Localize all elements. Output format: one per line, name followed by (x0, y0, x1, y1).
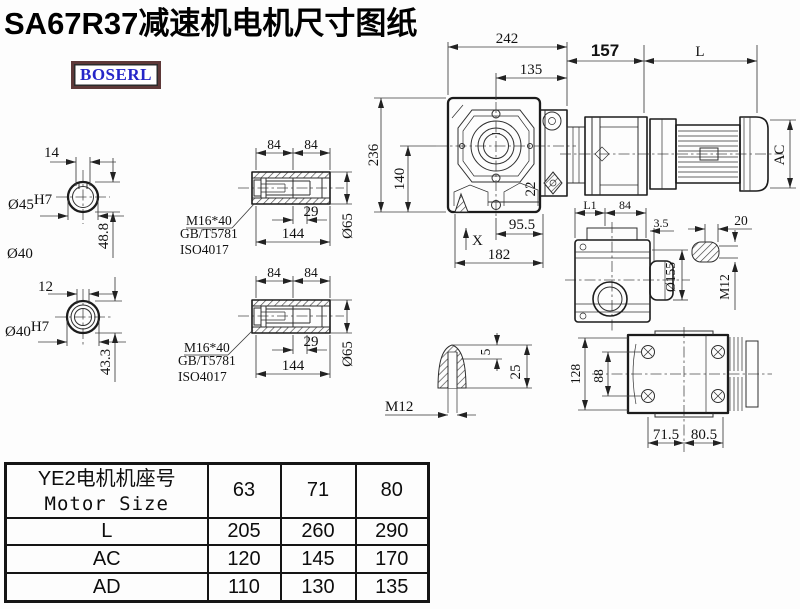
dim-dia-a: Ø65 (340, 213, 356, 239)
table-size-71: 71 (281, 464, 356, 518)
table-header-en: Motor Size (7, 492, 207, 516)
dim-motor-length-L: L (695, 44, 704, 60)
cell-AC-71: 145 (281, 545, 356, 573)
dim-foot-182: 182 (488, 247, 511, 263)
label-std2-b: ISO4017 (178, 369, 227, 384)
dim-plug-5: 5 (478, 348, 493, 355)
dim-side-3-5: 3.5 (654, 216, 669, 230)
dim-motor-dia-AC: AC (772, 145, 788, 166)
dim-len1-b: 84 (267, 265, 281, 280)
dim-keylen-b: 29 (304, 334, 319, 350)
dim-flange-dia-155: Ø155 (663, 262, 678, 292)
table-header-label: YE2电机机座号 Motor Size (6, 464, 208, 518)
cell-AD-80: 135 (356, 573, 429, 601)
dim-top-71-5: 71.5 (653, 427, 679, 443)
dim-adapter-157: 157 (591, 41, 619, 60)
cell-L-63: 205 (208, 518, 281, 545)
table-row: AD 110 130 135 (6, 573, 429, 601)
drawing-sheet: SA67R37减速机电机尺寸图纸 BOSERL 14 (0, 0, 800, 609)
view-shaft-bore-b: 12 Ø40H7 43.3 (5, 277, 126, 382)
table-size-80: 80 (356, 464, 429, 518)
label-std1-b: GB/T5781 (178, 353, 236, 368)
dim-bolt-22: 22 (523, 182, 539, 197)
dim-tocenter-135: 135 (520, 62, 543, 78)
label-x-mark: X (472, 233, 483, 249)
dim-top-80-5: 80.5 (691, 427, 717, 443)
table-size-63: 63 (208, 464, 281, 518)
dim-depth-a: 48.8 (96, 223, 112, 249)
label-std2-a: ISO4017 (180, 242, 229, 257)
dim-key-width-a: 14 (44, 145, 60, 161)
label-std1-a: GB/T5781 (180, 226, 238, 241)
dim-len2-a: 84 (304, 137, 318, 152)
cell-L-71: 260 (281, 518, 356, 545)
row-label-L: L (6, 518, 208, 545)
dim-top-128: 128 (568, 364, 583, 385)
cell-L-80: 290 (356, 518, 429, 545)
dim-height-236: 236 (366, 143, 382, 166)
label-tap-m12-plug: M12 (385, 399, 413, 415)
dim-total-a: 144 (282, 226, 305, 242)
table-row: AC 120 145 170 (6, 545, 429, 573)
table-row: L 205 260 290 (6, 518, 429, 545)
dim-top-88: 88 (591, 369, 606, 383)
dim-bore-a: Ø45H7 (8, 192, 53, 213)
dim-dia-b: Ø65 (340, 341, 356, 367)
dim-depth-b: 43.3 (98, 349, 114, 375)
view-shaft-bore-a: 14 Ø45H7 48.8 Ø40 (7, 145, 124, 262)
row-label-AC: AC (6, 545, 208, 573)
view-top: 128 88 71.5 80.5 (568, 327, 772, 452)
label-tap-m12-side: M12 (717, 274, 732, 300)
dim-key-20: 20 (734, 213, 748, 228)
dim-len2-b: 84 (304, 265, 318, 280)
motor-size-table: YE2电机机座号 Motor Size 63 71 80 L 205 260 2… (4, 462, 430, 603)
cell-AC-63: 120 (208, 545, 281, 573)
dim-total-b: 144 (282, 358, 305, 374)
label-outer-dia: Ø40 (7, 246, 33, 262)
row-label-AD: AD (6, 573, 208, 601)
view-side: L1 84 3.5 Ø155 20 M12 (565, 198, 752, 332)
dim-l1: L1 (583, 198, 596, 212)
cell-AD-63: 110 (208, 573, 281, 601)
dim-foot-95-5: 95.5 (509, 217, 535, 233)
table-header-row: YE2电机机座号 Motor Size 63 71 80 (6, 464, 429, 518)
dim-len1-a: 84 (267, 137, 281, 152)
dim-keylen-a: 29 (304, 204, 319, 220)
view-front-assembly: 22 (366, 31, 796, 268)
dim-centerh-140: 140 (392, 168, 408, 191)
dim-width-242: 242 (496, 31, 519, 47)
cell-AD-71: 130 (281, 573, 356, 601)
cell-AC-80: 170 (356, 545, 429, 573)
view-hollow-shaft-b: 84 84 29 144 Ø65 M16*40 GB/T5781 ISO4017 (178, 265, 356, 384)
dim-plug-25: 25 (508, 365, 524, 380)
table-header-cn: YE2电机机座号 (7, 466, 207, 492)
dim-key-width-b: 12 (38, 279, 53, 295)
dim-bore-b: Ø40H7 (5, 319, 50, 340)
view-hollow-shaft-a: 84 84 29 144 Ø65 M16*40 GB/T5781 ISO4017 (180, 137, 356, 257)
view-plug-detail: 5 25 M12 (385, 333, 532, 415)
dim-side-84: 84 (619, 198, 631, 212)
